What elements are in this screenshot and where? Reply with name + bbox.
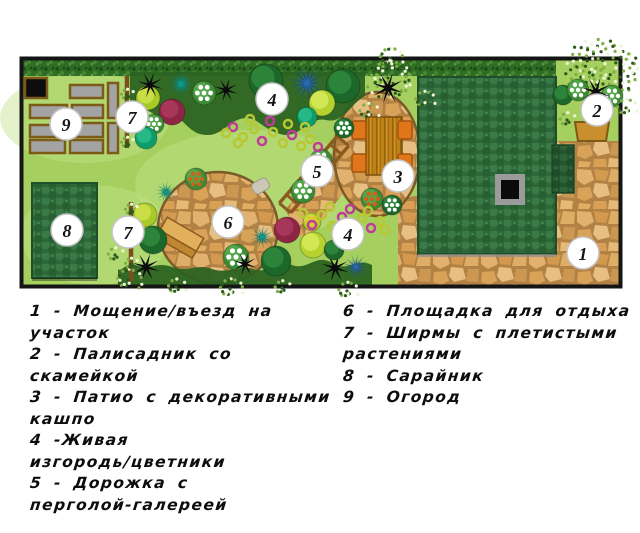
legend-line: 1 - Мощение/въезд на <box>29 301 336 323</box>
speckle-dot <box>635 110 638 113</box>
speckle-dot <box>124 262 127 265</box>
speckle-dot <box>277 281 280 284</box>
bush-blossom <box>230 261 235 266</box>
speckle-dot <box>110 248 113 251</box>
speckle-dot <box>582 75 585 78</box>
speckle-dot <box>132 90 135 93</box>
speckle-dot <box>623 111 626 114</box>
legend-line: кашпо <box>29 409 336 431</box>
legend-line: 5 - Дорожка с <box>29 473 336 495</box>
speckle-dot <box>601 82 604 85</box>
speckle-dot <box>567 121 570 124</box>
speckle-dot <box>559 117 562 120</box>
bush-blossom <box>570 88 574 92</box>
bush-blossom <box>202 91 207 96</box>
legend-line: 2 - Палисадник со <box>29 344 336 366</box>
marker-number: 4 <box>267 90 277 110</box>
speckle-dot <box>185 289 188 292</box>
bush-blossom <box>205 96 210 101</box>
speckle-dot <box>590 42 593 45</box>
bush-blossom <box>613 99 617 103</box>
speckle-dot <box>380 52 383 55</box>
flowering-bush-highlight <box>335 119 349 133</box>
bush-blossom <box>396 203 400 207</box>
bush-blossom <box>339 121 343 125</box>
speckle-dot <box>173 290 176 293</box>
bush-blossom <box>233 254 238 259</box>
speckle-dot <box>126 136 129 139</box>
speckle-dot <box>611 45 614 48</box>
legend-line: растениями <box>342 344 636 366</box>
speckle-dot <box>371 91 374 94</box>
speckle-dot <box>233 278 236 281</box>
flowering-bush-highlight <box>569 80 584 95</box>
speckle-dot <box>634 101 637 104</box>
patio-chair <box>398 121 412 139</box>
bush-blossom <box>297 183 302 188</box>
speckle-dot <box>227 279 230 282</box>
marker-number: 3 <box>393 167 403 187</box>
speckle-dot <box>140 276 143 279</box>
tree-highlight <box>311 91 329 109</box>
plan-marker-7: 7 <box>112 216 144 248</box>
plan-marker-9: 9 <box>50 108 82 140</box>
bush-blossom <box>342 126 346 130</box>
speckle-dot <box>591 57 594 60</box>
bush-blossom <box>616 94 620 98</box>
bush-blossom <box>312 216 316 220</box>
speckle-dot <box>118 279 121 282</box>
speckle-dot <box>571 53 574 56</box>
speckle-dot <box>175 277 178 280</box>
speckle-dot <box>356 293 359 296</box>
speckle-dot <box>241 291 244 294</box>
speckle-dot <box>135 271 138 274</box>
speckle-dot <box>137 286 140 289</box>
bush-blossom <box>390 203 394 207</box>
bush-blossom <box>393 208 397 212</box>
speckle-dot <box>569 68 572 71</box>
bush-blossom <box>610 94 614 98</box>
tree-highlight <box>276 218 294 236</box>
speckle-dot <box>367 102 370 105</box>
speckle-dot <box>575 73 578 76</box>
speckle-dot <box>599 74 602 77</box>
speckle-dot <box>125 269 128 272</box>
speckle-dot <box>634 57 637 60</box>
garden-plan-page: 12344567789 1 - Мощение/въезд научасток2… <box>0 0 640 533</box>
speckle-dot <box>381 69 384 72</box>
speckle-dot <box>590 68 593 71</box>
speckle-dot <box>341 282 344 285</box>
bush-blossom <box>373 192 377 196</box>
speckle-dot <box>401 60 404 63</box>
speckle-dot <box>123 283 126 286</box>
speckle-dot <box>627 52 630 55</box>
speckle-dot <box>593 70 596 73</box>
speckle-dot <box>136 205 139 208</box>
speckle-dot <box>387 48 390 51</box>
bush-blossom <box>345 131 349 135</box>
speckle-dot <box>374 77 377 80</box>
speckle-dot <box>337 288 340 291</box>
speckle-dot <box>625 98 628 101</box>
speckle-dot <box>395 61 398 64</box>
speckle-dot <box>620 45 623 48</box>
speckle-dot <box>616 105 619 108</box>
speckle-dot <box>588 71 591 74</box>
speckle-dot <box>404 89 407 92</box>
speckle-dot <box>609 73 612 76</box>
speckle-dot <box>572 60 575 63</box>
bush-blossom <box>155 117 159 121</box>
speckle-dot <box>223 279 226 282</box>
speckle-dot <box>132 138 135 141</box>
speckle-dot <box>625 58 628 61</box>
speckle-dot <box>585 55 588 58</box>
speckle-dot <box>171 279 174 282</box>
speckle-dot <box>427 91 430 94</box>
bush-blossom <box>579 93 583 97</box>
speckle-dot <box>387 65 390 68</box>
speckle-dot <box>626 75 629 78</box>
plan-marker-1: 1 <box>567 237 599 269</box>
speckle-dot <box>382 65 385 68</box>
speckle-dot <box>114 246 117 249</box>
speckle-dot <box>432 93 435 96</box>
speckle-dot <box>631 62 634 65</box>
speckle-dot <box>414 97 417 100</box>
speckle-dot <box>350 282 353 285</box>
speckle-dot <box>375 73 378 76</box>
speckle-dot <box>578 53 581 56</box>
speckle-dot <box>126 88 129 91</box>
speckle-dot <box>593 77 596 80</box>
bush-blossom <box>376 197 380 201</box>
speckle-dot <box>128 266 131 269</box>
garden-bed <box>70 140 103 153</box>
garden-bed <box>30 140 65 153</box>
speckle-dot <box>607 77 610 80</box>
bush-blossom <box>152 122 156 126</box>
speckle-dot <box>606 52 609 55</box>
speckle-dot <box>355 284 358 287</box>
speckle-dot <box>174 285 177 288</box>
speckle-dot <box>575 65 578 68</box>
speckle-dot <box>564 72 567 75</box>
speckle-dot <box>276 290 279 293</box>
speckle-dot <box>629 99 632 102</box>
speckle-dot <box>121 270 124 273</box>
speckle-dot <box>566 111 569 114</box>
speckle-dot <box>595 66 598 69</box>
bush-blossom <box>197 172 201 176</box>
speckle-dot <box>241 285 244 288</box>
marker-number: 4 <box>343 225 353 245</box>
speckle-dot <box>405 66 408 69</box>
bush-blossom <box>294 189 299 194</box>
speckle-dot <box>124 97 127 100</box>
speckle-dot <box>416 101 419 104</box>
speckle-dot <box>177 288 180 291</box>
speckle-dot <box>403 80 406 83</box>
bush-blossom <box>158 122 162 126</box>
speckle-dot <box>123 137 126 140</box>
speckle-dot <box>225 292 228 295</box>
speckle-dot <box>588 75 591 78</box>
speckle-dot <box>582 70 585 73</box>
speckle-dot <box>279 290 282 293</box>
speckle-dot <box>130 203 133 206</box>
legend-column-right: 6 - Площадка для отдыха7 - Ширмы с плети… <box>343 301 635 409</box>
speckle-dot <box>183 281 186 284</box>
speckle-dot <box>136 259 139 262</box>
garden-bed <box>108 123 118 153</box>
speckle-dot <box>408 73 411 76</box>
speckle-dot <box>619 75 622 78</box>
speckle-dot <box>107 252 110 255</box>
plan-marker-6: 6 <box>212 206 244 238</box>
bush-blossom <box>387 198 391 202</box>
speckle-dot <box>601 59 604 62</box>
bush-blossom <box>208 91 213 96</box>
speckle-dot <box>377 95 380 98</box>
legend-line: изгородь/цветники <box>29 452 336 474</box>
speckle-dot <box>405 75 408 78</box>
speckle-dot <box>620 99 623 102</box>
speckle-dot <box>383 48 386 51</box>
flowering-bush-highlight <box>194 82 210 98</box>
speckle-dot <box>597 38 600 41</box>
speckle-dot <box>274 285 277 288</box>
speckle-dot <box>400 65 403 68</box>
chimney <box>501 180 519 199</box>
speckle-dot <box>366 85 369 88</box>
bush-blossom <box>337 126 341 130</box>
speckle-dot <box>365 115 368 118</box>
speckle-dot <box>573 114 576 117</box>
speckle-dot <box>399 68 402 71</box>
bush-blossom <box>194 177 198 181</box>
patio-chair <box>352 154 366 172</box>
marker-number: 2 <box>592 101 602 121</box>
speckle-dot <box>344 294 347 297</box>
speckle-dot <box>619 56 622 59</box>
speckle-dot <box>631 71 634 74</box>
speckle-dot <box>140 283 143 286</box>
speckle-dot <box>407 79 410 82</box>
speckle-dot <box>109 257 112 260</box>
speckle-dot <box>409 83 412 86</box>
speckle-dot <box>564 122 567 125</box>
speckle-dot <box>573 46 576 49</box>
speckle-dot <box>120 141 123 144</box>
tree-highlight <box>554 86 568 100</box>
speckle-dot <box>390 62 393 65</box>
speckle-dot <box>603 62 606 65</box>
legend-line: 6 - Площадка для отдыха <box>342 301 636 323</box>
speckle-dot <box>394 92 397 95</box>
speckle-dot <box>602 77 605 80</box>
garden-bed <box>25 78 47 98</box>
speckle-dot <box>115 256 118 259</box>
bush-blossom <box>307 189 312 194</box>
speckle-dot <box>401 73 404 76</box>
bush-blossom <box>573 83 577 87</box>
speckle-dot <box>371 103 374 106</box>
speckle-dot <box>128 282 131 285</box>
legend-line: 4 -Живая <box>29 430 336 452</box>
speckle-dot <box>358 109 361 112</box>
speckle-dot <box>230 290 233 293</box>
speckle-dot <box>561 122 564 125</box>
speckle-dot <box>138 272 141 275</box>
speckle-dot <box>633 78 636 81</box>
speckle-dot <box>619 50 622 53</box>
marker-number: 8 <box>63 221 72 241</box>
bush-blossom <box>348 126 352 130</box>
speckle-dot <box>418 91 421 94</box>
speckle-dot <box>625 109 628 112</box>
speckle-dot <box>360 113 363 116</box>
speckle-dot <box>627 87 630 90</box>
legend-line: 8 - Сарайник <box>342 366 636 388</box>
marker-number: 6 <box>224 213 233 233</box>
speckle-dot <box>167 284 170 287</box>
legend-line: 3 - Патио с декоративными <box>29 387 336 409</box>
speckle-dot <box>373 70 376 73</box>
speckle-dot <box>384 61 387 64</box>
speckle-dot <box>388 59 391 62</box>
speckle-dot <box>124 208 127 211</box>
speckle-dot <box>393 47 396 50</box>
speckle-dot <box>614 66 617 69</box>
speckle-dot <box>618 109 621 112</box>
legend-line: 7 - Ширмы с плетистыми <box>342 323 636 345</box>
bush-blossom <box>191 182 195 186</box>
bush-blossom <box>364 197 368 201</box>
flowering-bush-highlight <box>363 189 378 204</box>
speckle-dot <box>395 65 398 68</box>
speckle-dot <box>586 48 589 51</box>
speckle-dot <box>367 113 370 116</box>
bush-blossom <box>573 93 577 97</box>
bush-blossom <box>226 254 231 259</box>
speckle-dot <box>127 204 130 207</box>
plan-marker-3: 3 <box>382 160 414 192</box>
speckle-dot <box>604 47 607 50</box>
tree-highlight <box>328 71 351 94</box>
speckle-dot <box>120 93 123 96</box>
speckle-dot <box>580 46 583 49</box>
speckle-dot <box>421 103 424 106</box>
speckle-dot <box>169 287 172 290</box>
speckle-dot <box>628 66 631 69</box>
plan-marker-5: 5 <box>301 155 333 187</box>
bush-blossom <box>385 203 389 207</box>
speckle-dot <box>423 90 426 93</box>
speckle-dot <box>377 67 380 70</box>
garden-bed <box>70 85 103 98</box>
speckle-dot <box>591 74 594 77</box>
speckle-dot <box>584 65 587 68</box>
speckle-dot <box>597 57 600 60</box>
speckle-dot <box>378 71 381 74</box>
bush-blossom <box>149 117 153 121</box>
speckle-dot <box>609 40 612 43</box>
speckle-dot <box>602 66 605 69</box>
speckle-dot <box>112 257 115 260</box>
bush-blossom <box>607 89 611 93</box>
speckle-dot <box>622 69 625 72</box>
speckle-dot <box>121 249 124 252</box>
speckle-dot <box>124 145 127 148</box>
speckle-dot <box>398 93 401 96</box>
tree-highlight <box>302 233 320 251</box>
bush-blossom <box>579 83 583 87</box>
marker-number: 5 <box>313 162 322 182</box>
speckle-dot <box>370 74 373 77</box>
marker-number: 1 <box>579 244 588 264</box>
bush-blossom <box>230 248 235 253</box>
speckle-dot <box>132 269 135 272</box>
speckle-dot <box>376 105 379 108</box>
bush-blossom <box>339 131 343 135</box>
bush-blossom <box>237 248 242 253</box>
bush-blossom <box>367 192 371 196</box>
flowering-bush-highlight <box>187 169 202 184</box>
speckle-dot <box>612 56 615 59</box>
speckle-dot <box>378 63 381 66</box>
speckle-dot <box>346 292 349 295</box>
speckle-dot <box>383 75 386 78</box>
plan-marker-2: 2 <box>581 94 613 126</box>
legend-line: 9 - Огород <box>342 387 636 409</box>
bush-blossom <box>198 85 203 90</box>
bush-blossom <box>155 127 159 131</box>
speckle-dot <box>381 59 384 62</box>
speckle-dot <box>627 80 630 83</box>
bush-blossom <box>198 96 203 101</box>
speckle-dot <box>127 258 130 261</box>
speckle-dot <box>586 59 589 62</box>
bush-blossom <box>367 202 371 206</box>
tree-highlight <box>263 248 283 268</box>
bush-blossom <box>387 208 391 212</box>
plan-marker-4: 4 <box>332 218 364 250</box>
bush-blossom <box>200 177 204 181</box>
speckle-dot <box>612 71 615 74</box>
bush-blossom <box>205 85 210 90</box>
speckle-dot <box>399 51 402 54</box>
speckle-dot <box>123 89 126 92</box>
plan-marker-8: 8 <box>51 214 83 246</box>
bush-blossom <box>301 189 306 194</box>
speckle-dot <box>562 113 565 116</box>
speckle-dot <box>622 63 625 66</box>
speckle-dot <box>386 76 389 79</box>
speckle-dot <box>614 61 617 64</box>
speckle-dot <box>604 73 607 76</box>
speckle-dot <box>566 62 569 65</box>
speckle-dot <box>221 290 224 293</box>
speckle-dot <box>579 59 582 62</box>
speckle-dot <box>130 257 133 260</box>
speckle-dot <box>228 287 231 290</box>
bush-blossom <box>576 88 580 92</box>
plan-marker-4: 4 <box>256 83 288 115</box>
bush-blossom <box>297 194 302 199</box>
